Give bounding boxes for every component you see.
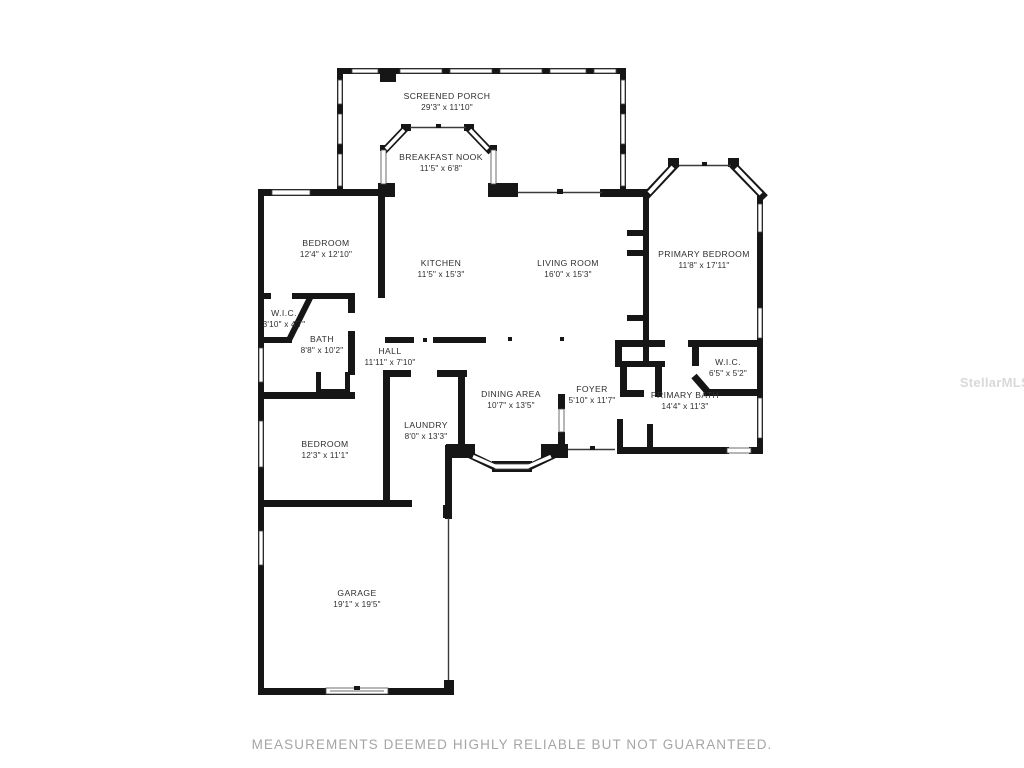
room-name: PRIMARY BEDROOM: [658, 249, 750, 260]
room-name: BATH: [301, 334, 344, 345]
room-label-bedroom-upper: BEDROOM 12'4" x 12'10": [300, 238, 352, 260]
room-dims: 12'3" x 11'1": [301, 450, 348, 461]
room-name: W.I.C.: [263, 308, 306, 319]
room-name: DINING AREA: [481, 389, 541, 400]
floorplan-page: SCREENED PORCH 29'3" x 11'10" BREAKFAST …: [0, 0, 1024, 768]
room-label-wic-right: W.I.C. 6'5" x 5'2": [709, 357, 747, 379]
room-dims: 11'5" x 15'3": [418, 269, 465, 280]
room-name: HALL: [364, 346, 415, 357]
room-label-kitchen: KITCHEN 11'5" x 15'3": [418, 258, 465, 280]
room-dims: 16'0" x 15'3": [537, 269, 599, 280]
room-name: W.I.C.: [709, 357, 747, 368]
room-dims: 8'0" x 13'3": [404, 431, 448, 442]
room-dims: 5'10" x 11'7": [569, 395, 616, 406]
room-name: SCREENED PORCH: [404, 91, 491, 102]
room-label-bedroom-lower: BEDROOM 12'3" x 11'1": [301, 439, 348, 461]
mls-watermark: StellarMLS: [960, 375, 1024, 390]
room-dims: 12'4" x 12'10": [300, 249, 352, 260]
room-dims: 8'8" x 10'2": [301, 345, 344, 356]
room-label-laundry: LAUNDRY 8'0" x 13'3": [404, 420, 448, 442]
room-label-garage: GARAGE 19'1" x 19'5": [333, 588, 381, 610]
angled-walls-layer: [289, 128, 765, 469]
disclaimer-text: MEASUREMENTS DEEMED HIGHLY RELIABLE BUT …: [0, 737, 1024, 752]
room-dims: 29'3" x 11'10": [404, 102, 491, 113]
room-name: BEDROOM: [300, 238, 352, 249]
angled-windows-layer: [386, 130, 761, 467]
room-dims: 10'7" x 13'5": [481, 400, 541, 411]
room-label-living-room: LIVING ROOM 16'0" x 15'3": [537, 258, 599, 280]
room-label-bath: BATH 8'8" x 10'2": [301, 334, 344, 356]
room-dims: 11'8" x 17'11": [658, 260, 750, 271]
room-label-foyer: FOYER 5'10" x 11'7": [569, 384, 616, 406]
room-dims: 11'5" x 6'8": [399, 163, 483, 174]
room-name: FOYER: [569, 384, 616, 395]
room-name: KITCHEN: [418, 258, 465, 269]
room-dims: 14'4" x 11'3": [651, 401, 719, 412]
room-dims: 6'5" x 5'2": [709, 368, 747, 379]
room-dims: 11'11" x 7'10": [364, 357, 415, 368]
room-name: PRIMARY BATH: [651, 390, 719, 401]
room-label-wic-left: W.I.C. 3'10" x 4'7": [263, 308, 306, 330]
room-label-dining-area: DINING AREA 10'7" x 13'5": [481, 389, 541, 411]
room-name: BEDROOM: [301, 439, 348, 450]
room-name: LIVING ROOM: [537, 258, 599, 269]
floorplan-drawing: [0, 0, 1024, 768]
room-name: LAUNDRY: [404, 420, 448, 431]
room-name: BREAKFAST NOOK: [399, 152, 483, 163]
room-name: GARAGE: [333, 588, 381, 599]
room-dims: 3'10" x 4'7": [263, 319, 306, 330]
room-label-hall: HALL 11'11" x 7'10": [364, 346, 415, 368]
room-dims: 19'1" x 19'5": [333, 599, 381, 610]
room-label-primary-bath: PRIMARY BATH 14'4" x 11'3": [651, 390, 719, 412]
room-label-screened-porch: SCREENED PORCH 29'3" x 11'10": [404, 91, 491, 113]
room-label-breakfast-nook: BREAKFAST NOOK 11'5" x 6'8": [399, 152, 483, 174]
room-label-primary-bedroom: PRIMARY BEDROOM 11'8" x 17'11": [658, 249, 750, 271]
